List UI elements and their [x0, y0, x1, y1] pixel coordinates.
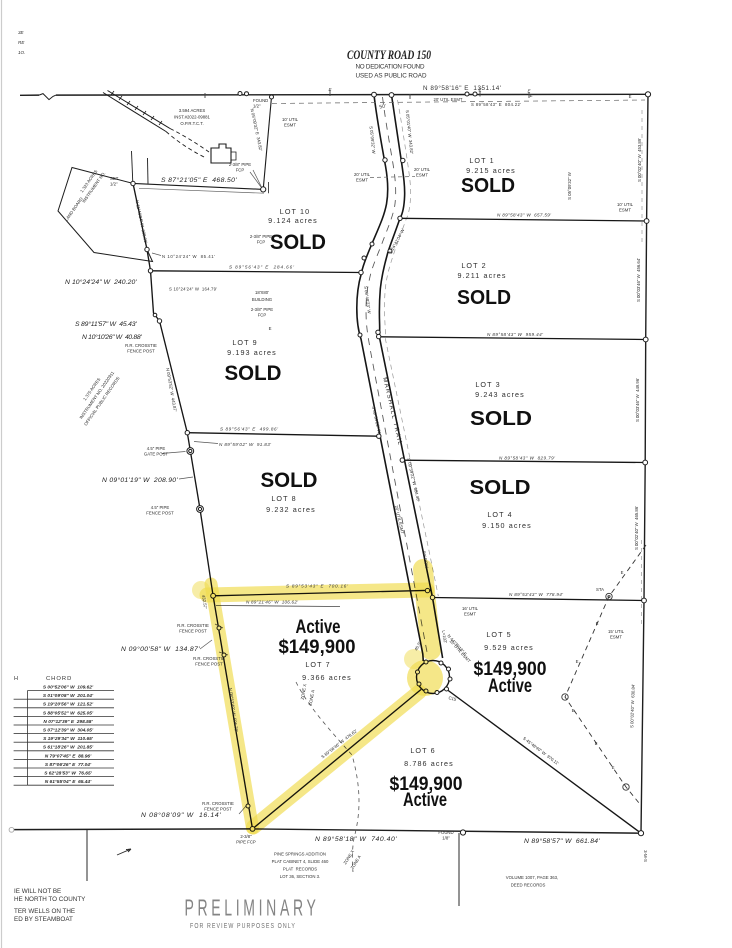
svg-text:SOLD: SOLD — [461, 174, 515, 197]
svg-text:S 10°24'24" W 164.79': S 10°24'24" W 164.79' — [169, 287, 217, 292]
svg-text:PRELIMINARY: PRELIMINARY — [185, 895, 320, 921]
svg-text:FENCE POST: FENCE POST — [146, 511, 174, 516]
svg-text:FOUND: FOUND — [438, 830, 453, 835]
svg-text:3-M-S: 3-M-S — [643, 850, 648, 862]
svg-text:S 62°28'53" W 76.65': S 62°28'53" W 76.65' — [44, 771, 92, 777]
svg-text:ESMT: ESMT — [610, 635, 622, 640]
svg-text:INST.#2022-09881: INST.#2022-09881 — [174, 115, 210, 120]
svg-text:TER WELLS ON THE: TER WELLS ON THE — [14, 908, 75, 915]
svg-text:N 09°00'58" W 134.87': N 09°00'58" W 134.87' — [121, 645, 200, 653]
svg-text:O.P.R.T.C.T.: O.P.R.T.C.T. — [180, 121, 203, 126]
svg-text:N 10°24'24" W 240.20': N 10°24'24" W 240.20' — [65, 278, 137, 286]
svg-text:N 89°58'43" W 829.79': N 89°58'43" W 829.79' — [499, 456, 555, 461]
svg-text:LOT 7: LOT 7 — [305, 660, 330, 669]
svg-text:10' UTIL: 10' UTIL — [282, 117, 299, 122]
svg-text:ESMT: ESMT — [416, 173, 428, 178]
svg-text:PIPE FCP: PIPE FCP — [236, 840, 256, 845]
svg-text:9.243 acres: 9.243 acres — [475, 390, 525, 399]
svg-text:N 89°58'57" W 661.84': N 89°58'57" W 661.84' — [524, 837, 600, 845]
svg-text:CHORD: CHORD — [46, 676, 72, 682]
svg-text:DEED RECORDS: DEED RECORDS — [511, 883, 546, 888]
svg-text:S 00°03'46" W 449.96': S 00°03'46" W 449.96' — [635, 378, 640, 422]
svg-text:9.529 acres: 9.529 acres — [484, 643, 534, 652]
svg-text:N 89°58'16" E 1351.14': N 89°58'16" E 1351.14' — [423, 84, 501, 92]
svg-text:9.211 acres: 9.211 acres — [457, 271, 506, 280]
svg-text:IE WILL NOT BE: IE WILL NOT BE — [14, 888, 61, 895]
svg-text:FCP: FCP — [258, 313, 267, 318]
svg-text:SET: SET — [110, 176, 119, 181]
svg-text:ED BY STEAMBOAT: ED BY STEAMBOAT — [14, 916, 73, 923]
svg-text:SOLD: SOLD — [270, 230, 326, 254]
svg-text:R.R. CROSSTIE: R.R. CROSSTIE — [125, 343, 157, 348]
svg-text:16' UTIL: 16' UTIL — [462, 606, 479, 611]
svg-text:R.R. CROSSTIE: R.R. CROSSTIE — [202, 801, 234, 806]
svg-text:E: E — [612, 765, 615, 770]
svg-text:Active: Active — [296, 617, 341, 638]
svg-text:9.366 acres: 9.366 acres — [302, 673, 352, 682]
svg-text:9.193 acres: 9.193 acres — [227, 348, 277, 357]
svg-text:E: E — [576, 659, 579, 664]
svg-text:N 09°01'19" W 208.90': N 09°01'19" W 208.90' — [102, 476, 178, 484]
svg-text:N 08°08'09" W 16.14': N 08°08'09" W 16.14' — [141, 811, 221, 819]
svg-text:20' UTIL: 20' UTIL — [414, 167, 431, 172]
svg-text:NO DEDICATION FOUND: NO DEDICATION FOUND — [356, 64, 425, 71]
svg-text:S 00°52'06" W 109.62': S 00°52'06" W 109.62' — [43, 685, 94, 691]
svg-text:S 89°53'43" E 700.16': S 89°53'43" E 700.16' — [286, 584, 348, 589]
svg-text:SOLD: SOLD — [457, 286, 511, 309]
svg-text:1/2": 1/2" — [110, 182, 118, 187]
svg-text:4.5" PIPE: 4.5" PIPE — [151, 505, 170, 510]
svg-text:LOT 3: LOT 3 — [475, 380, 500, 389]
svg-text:S 00°02'40" W 453.89': S 00°02'40" W 453.89' — [637, 138, 642, 182]
svg-text:S 19°29'34" W 110.65': S 19°29'34" W 110.65' — [43, 736, 94, 742]
svg-text:PINE SPRINGS ADDITION: PINE SPRINGS ADDITION — [274, 852, 326, 857]
svg-text:18'X80': 18'X80' — [255, 290, 269, 295]
svg-text:FCP: FCP — [257, 240, 266, 245]
svg-text:S 89°58'43" E 804.22': S 89°58'43" E 804.22' — [471, 102, 521, 107]
svg-text:BUILDING: BUILDING — [252, 297, 273, 302]
svg-text:3E: 3E — [18, 30, 25, 35]
svg-text:HE NORTH TO COUNTY: HE NORTH TO COUNTY — [14, 896, 86, 903]
svg-text:RE: RE — [18, 40, 25, 45]
svg-text:FOR REVIEW PURPOSES ONLY: FOR REVIEW PURPOSES ONLY — [190, 921, 296, 930]
svg-text:LOT 1: LOT 1 — [469, 156, 494, 165]
svg-text:N 79°07'45" E 88.96': N 79°07'45" E 88.96' — [45, 753, 92, 759]
svg-text:LOT 4: LOT 4 — [487, 510, 512, 519]
svg-text:20' UTIL: 20' UTIL — [354, 172, 371, 177]
svg-text:R.R. CROSSTIE: R.R. CROSSTIE — [177, 623, 209, 628]
svg-text:S 19°20'56" W 121.52': S 19°20'56" W 121.52' — [43, 702, 94, 708]
svg-text:LOT 9: LOT 9 — [232, 338, 257, 347]
svg-text:S 00°02'40" W 465.86': S 00°02'40" W 465.86' — [634, 506, 639, 550]
svg-text:STA: STA — [596, 587, 604, 592]
svg-text:Active: Active — [488, 676, 532, 697]
svg-text:SOLD: SOLD — [261, 468, 318, 492]
svg-text:LOT 36, SECTION 3.: LOT 36, SECTION 3. — [280, 874, 321, 879]
svg-text:ESMT: ESMT — [619, 208, 631, 213]
svg-text:PLAT RECORDS: PLAT RECORDS — [283, 867, 317, 872]
svg-text:N 10°24'24" W 85.41': N 10°24'24" W 85.41' — [162, 254, 215, 259]
svg-text:LOT 6: LOT 6 — [410, 746, 435, 755]
svg-text:LOT 5: LOT 5 — [486, 630, 511, 639]
svg-text:E: E — [269, 326, 272, 331]
svg-text:H: H — [14, 676, 18, 682]
svg-text:E: E — [596, 621, 599, 626]
svg-text:LOT 8: LOT 8 — [271, 494, 296, 503]
svg-text:4.5" PIPE: 4.5" PIPE — [147, 446, 166, 451]
svg-text:S 88°05'52" W 625.05': S 88°05'52" W 625.05' — [43, 710, 94, 716]
svg-text:ESMT: ESMT — [464, 612, 476, 617]
svg-text:VOLUME 1007, PAGE 363,: VOLUME 1007, PAGE 363, — [506, 875, 558, 880]
svg-text:SOLD: SOLD — [225, 361, 282, 385]
svg-text:E: E — [530, 93, 533, 98]
svg-text:2-3/8" PIPE: 2-3/8" PIPE — [250, 234, 272, 239]
svg-text:S 89°56'43" E 284.66': S 89°56'43" E 284.66' — [229, 265, 294, 270]
svg-text:S 89°11'57" W 45.43': S 89°11'57" W 45.43' — [75, 320, 137, 328]
svg-text:FENCE POST: FENCE POST — [204, 807, 232, 812]
svg-text:S 07°12'39" W 304.05': S 07°12'39" W 304.05' — [43, 728, 94, 734]
svg-text:ESMT: ESMT — [356, 178, 368, 183]
svg-text:N 10°10'26" W 40.88': N 10°10'26" W 40.88' — [82, 333, 142, 341]
svg-text:1/8": 1/8" — [442, 836, 450, 841]
svg-text:S 87°21'05" E 468.50': S 87°21'05" E 468.50' — [161, 176, 237, 184]
svg-text:9.232 acres: 9.232 acres — [266, 505, 316, 514]
svg-text:FENCE POST: FENCE POST — [127, 349, 155, 354]
svg-text:S 87°06'26" E 77.04': S 87°06'26" E 77.04' — [45, 762, 92, 768]
svg-text:FENCE POST: FENCE POST — [195, 662, 223, 667]
svg-text:GATE POST: GATE POST — [144, 452, 169, 457]
svg-text:COUNTY ROAD 150: COUNTY ROAD 150 — [347, 47, 431, 62]
svg-text:FENCE POST: FENCE POST — [179, 629, 207, 634]
svg-text:2-3/8" PIPE: 2-3/8" PIPE — [251, 307, 273, 312]
svg-text:9.124 acres: 9.124 acres — [268, 216, 318, 225]
svg-text:1O.: 1O. — [18, 50, 25, 55]
svg-text:LOT 10: LOT 10 — [280, 207, 310, 216]
svg-text:3.594 ACRES: 3.594 ACRES — [179, 108, 206, 113]
svg-text:E: E — [629, 94, 632, 99]
svg-text:Active: Active — [403, 790, 447, 811]
svg-text:N 89°58'18" W 740.40': N 89°58'18" W 740.40' — [315, 835, 397, 843]
svg-text:S 05°09'32" W: S 05°09'32" W — [567, 171, 572, 200]
svg-text:SOLD: SOLD — [470, 407, 532, 430]
svg-text:E: E — [595, 741, 598, 746]
svg-text:20' UTIL ESMT: 20' UTIL ESMT — [433, 97, 462, 102]
svg-text:PLAT CABINET 4, SLIDE 460: PLAT CABINET 4, SLIDE 460 — [272, 859, 329, 864]
svg-text:LOT 2: LOT 2 — [461, 261, 486, 270]
svg-text:10' UTIL: 10' UTIL — [617, 202, 634, 207]
svg-text:S 89°56'43" E 499.86': S 89°56'43" E 499.86' — [220, 427, 278, 432]
svg-text:N 07°12'39" E 298.58': N 07°12'39" E 298.58' — [43, 719, 93, 725]
svg-text:N 89°58'43" W 657.59': N 89°58'43" W 657.59' — [497, 213, 551, 218]
svg-text:2-3/8": 2-3/8" — [240, 834, 252, 839]
svg-text:USED AS PUBLIC ROAD: USED AS PUBLIC ROAD — [356, 73, 427, 80]
svg-text:N 89°53'43" W 778.94': N 89°53'43" W 778.94' — [509, 592, 563, 597]
svg-text:E: E — [572, 708, 575, 713]
svg-text:8.786 acres: 8.786 acres — [404, 759, 454, 768]
svg-text:FOUND: FOUND — [253, 98, 268, 103]
svg-text:$149,900: $149,900 — [279, 637, 356, 658]
svg-text:9.150 acres: 9.150 acres — [482, 521, 532, 530]
svg-text:ESMT: ESMT — [284, 123, 296, 128]
svg-text:S 00°03'46" W 456.64': S 00°03'46" W 456.64' — [636, 258, 641, 302]
svg-text:N 89°59'02" W 91.83': N 89°59'02" W 91.83' — [219, 442, 271, 447]
svg-text:E: E — [621, 570, 624, 575]
svg-text:SOLD: SOLD — [470, 476, 531, 499]
svg-text:S 01°09'08" W 201.04': S 01°09'08" W 201.04' — [43, 693, 94, 699]
svg-text:15' UTIL: 15' UTIL — [608, 629, 625, 634]
svg-text:R.R. CROSSTIE: R.R. CROSSTIE — [193, 656, 225, 661]
svg-text:N 61°55'04" E 65.44': N 61°55'04" E 65.44' — [45, 779, 92, 785]
svg-text:2-3/8" PIPE: 2-3/8" PIPE — [229, 162, 251, 167]
svg-text:N 89°21'46" W 106.62': N 89°21'46" W 106.62' — [246, 600, 298, 605]
svg-text:N 89°58'43" W 959.44': N 89°58'43" W 959.44' — [487, 332, 543, 337]
svg-text:FCP: FCP — [236, 168, 245, 173]
svg-text:S 61°18'26" W 201.85': S 61°18'26" W 201.85' — [43, 745, 94, 751]
